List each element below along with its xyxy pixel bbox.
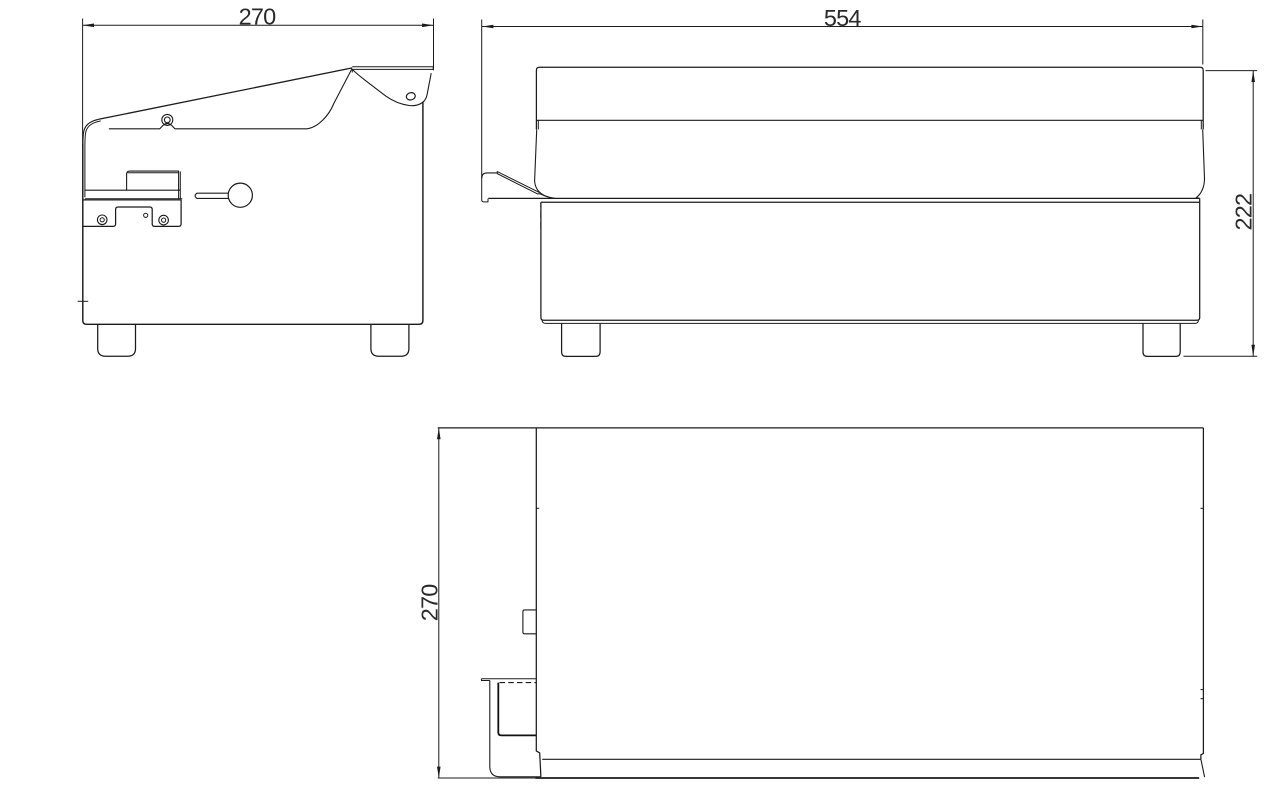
- svg-text:222: 222: [1230, 194, 1256, 231]
- svg-text:554: 554: [824, 5, 862, 31]
- svg-text:270: 270: [239, 4, 277, 30]
- svg-text:270: 270: [416, 584, 442, 622]
